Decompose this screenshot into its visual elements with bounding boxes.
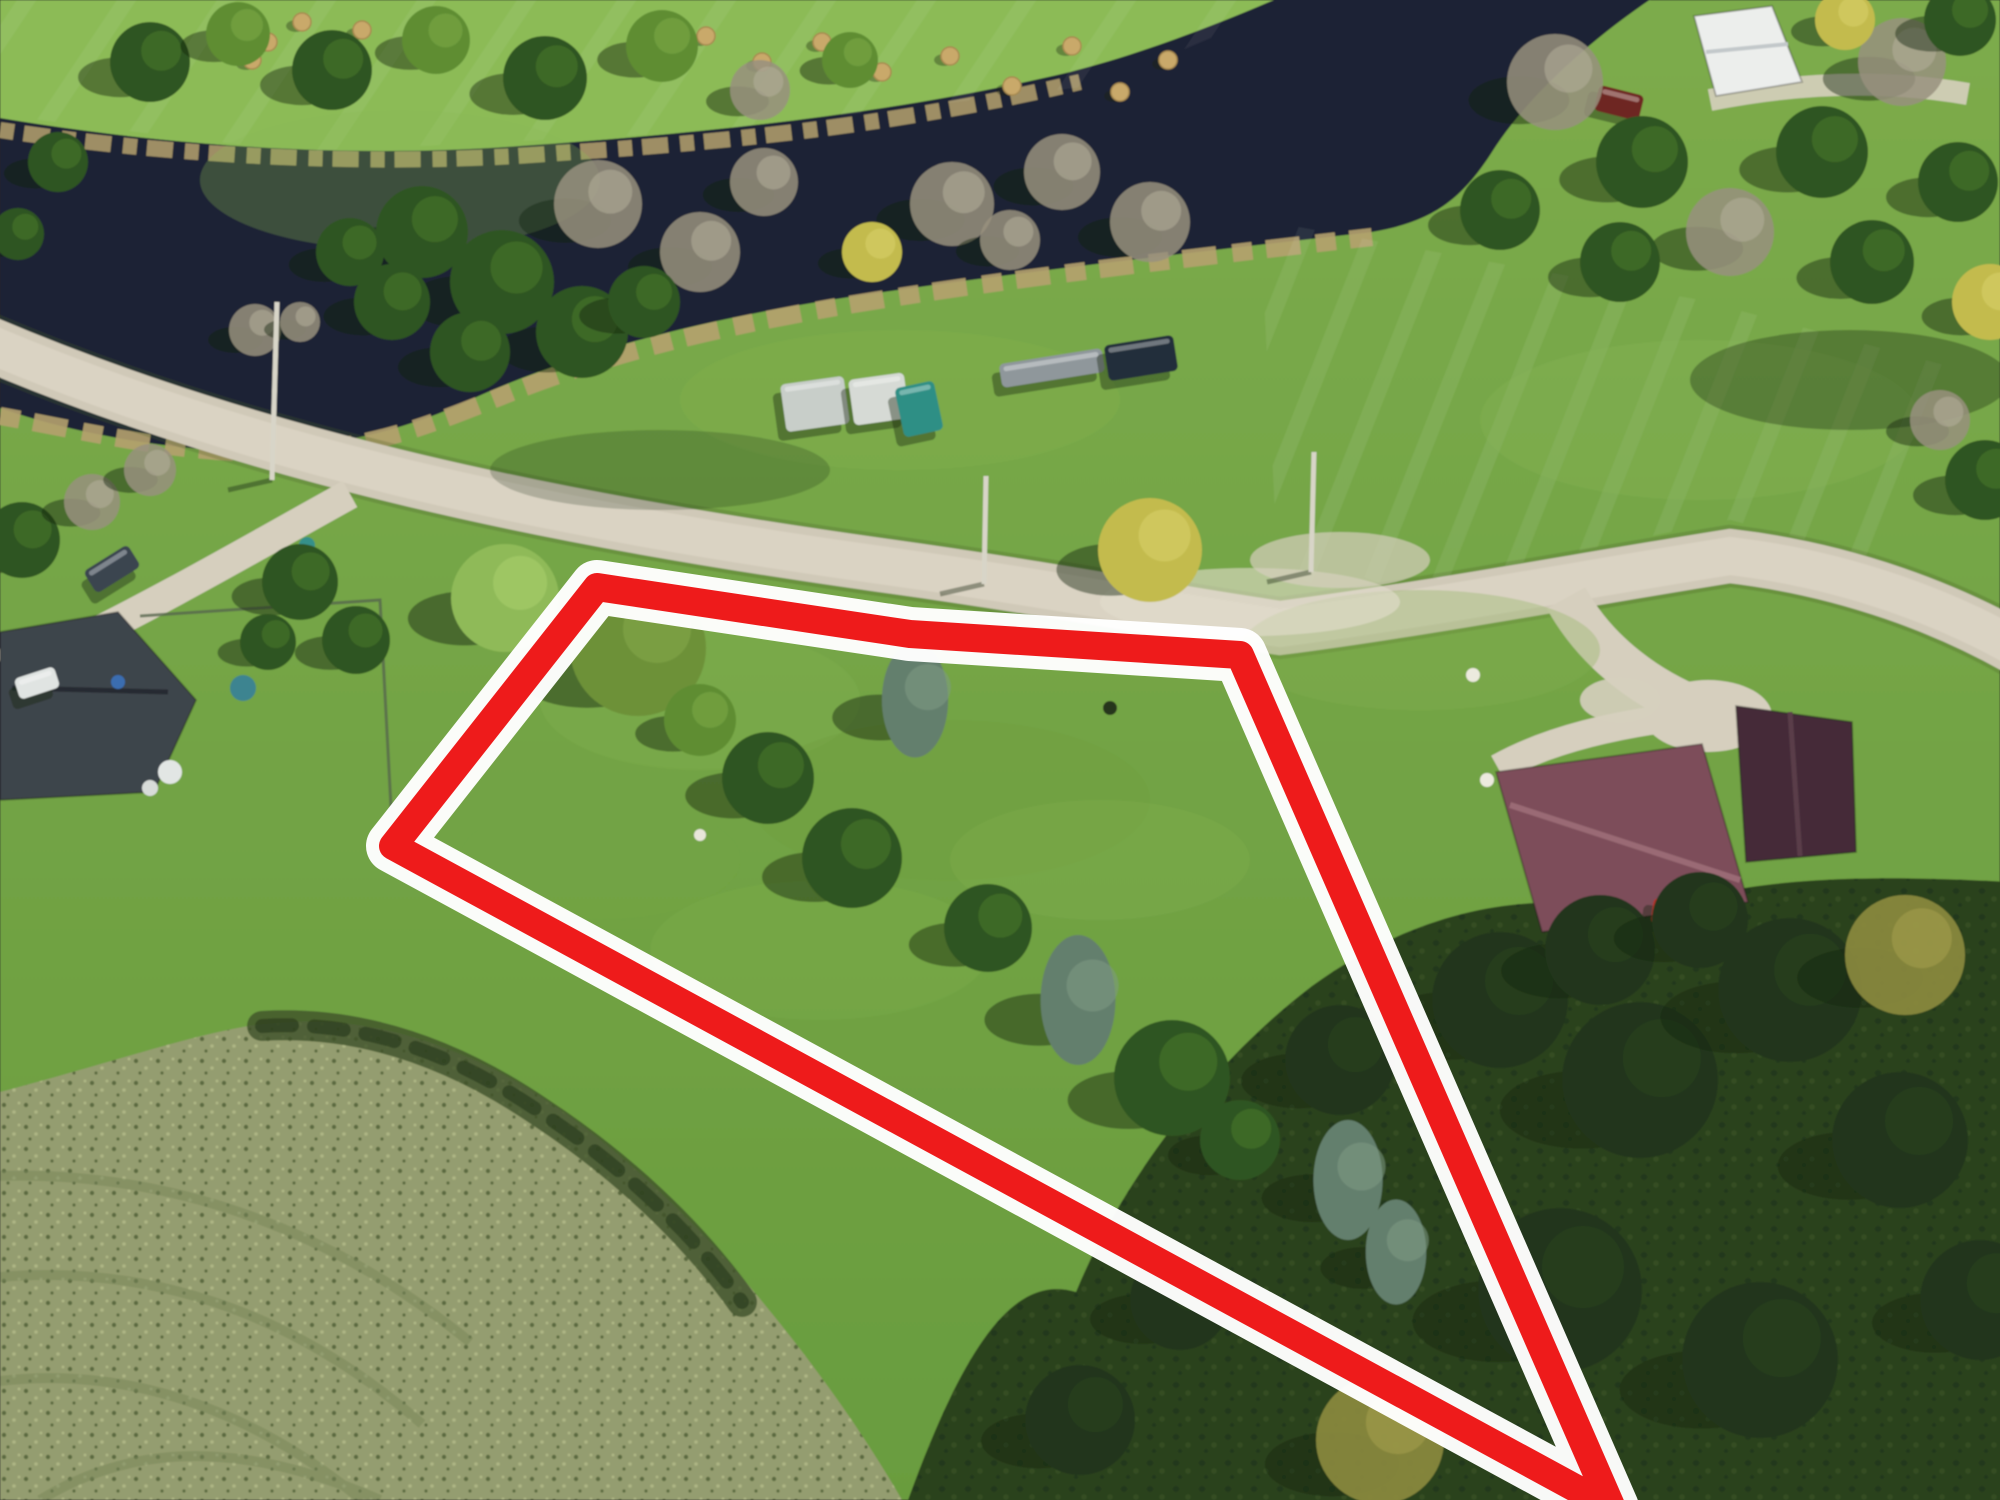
hay-bale <box>697 27 715 45</box>
vehicle <box>771 376 851 442</box>
yard-item <box>111 675 125 689</box>
yard-item <box>694 829 706 841</box>
hay-bale <box>1003 77 1021 95</box>
hay-bale <box>293 13 311 31</box>
turf-blotch <box>490 430 830 510</box>
hay-bale <box>1159 51 1177 69</box>
yard-item <box>1480 773 1494 787</box>
hay-bale <box>941 47 959 65</box>
yard-item <box>230 675 256 701</box>
turf-blotch <box>1580 678 1660 722</box>
yard-item <box>142 780 158 796</box>
hay-bale <box>1111 83 1129 101</box>
aerial-photo <box>0 0 2000 1500</box>
hay-bale <box>353 21 371 39</box>
yard-item <box>158 760 182 784</box>
yard-item <box>1103 701 1117 715</box>
yard-item <box>1466 668 1480 682</box>
aerial-photo-stage <box>0 0 2000 1500</box>
east-shed <box>1736 706 1856 862</box>
landscape <box>0 0 2000 1500</box>
hay-bale <box>1063 37 1081 55</box>
